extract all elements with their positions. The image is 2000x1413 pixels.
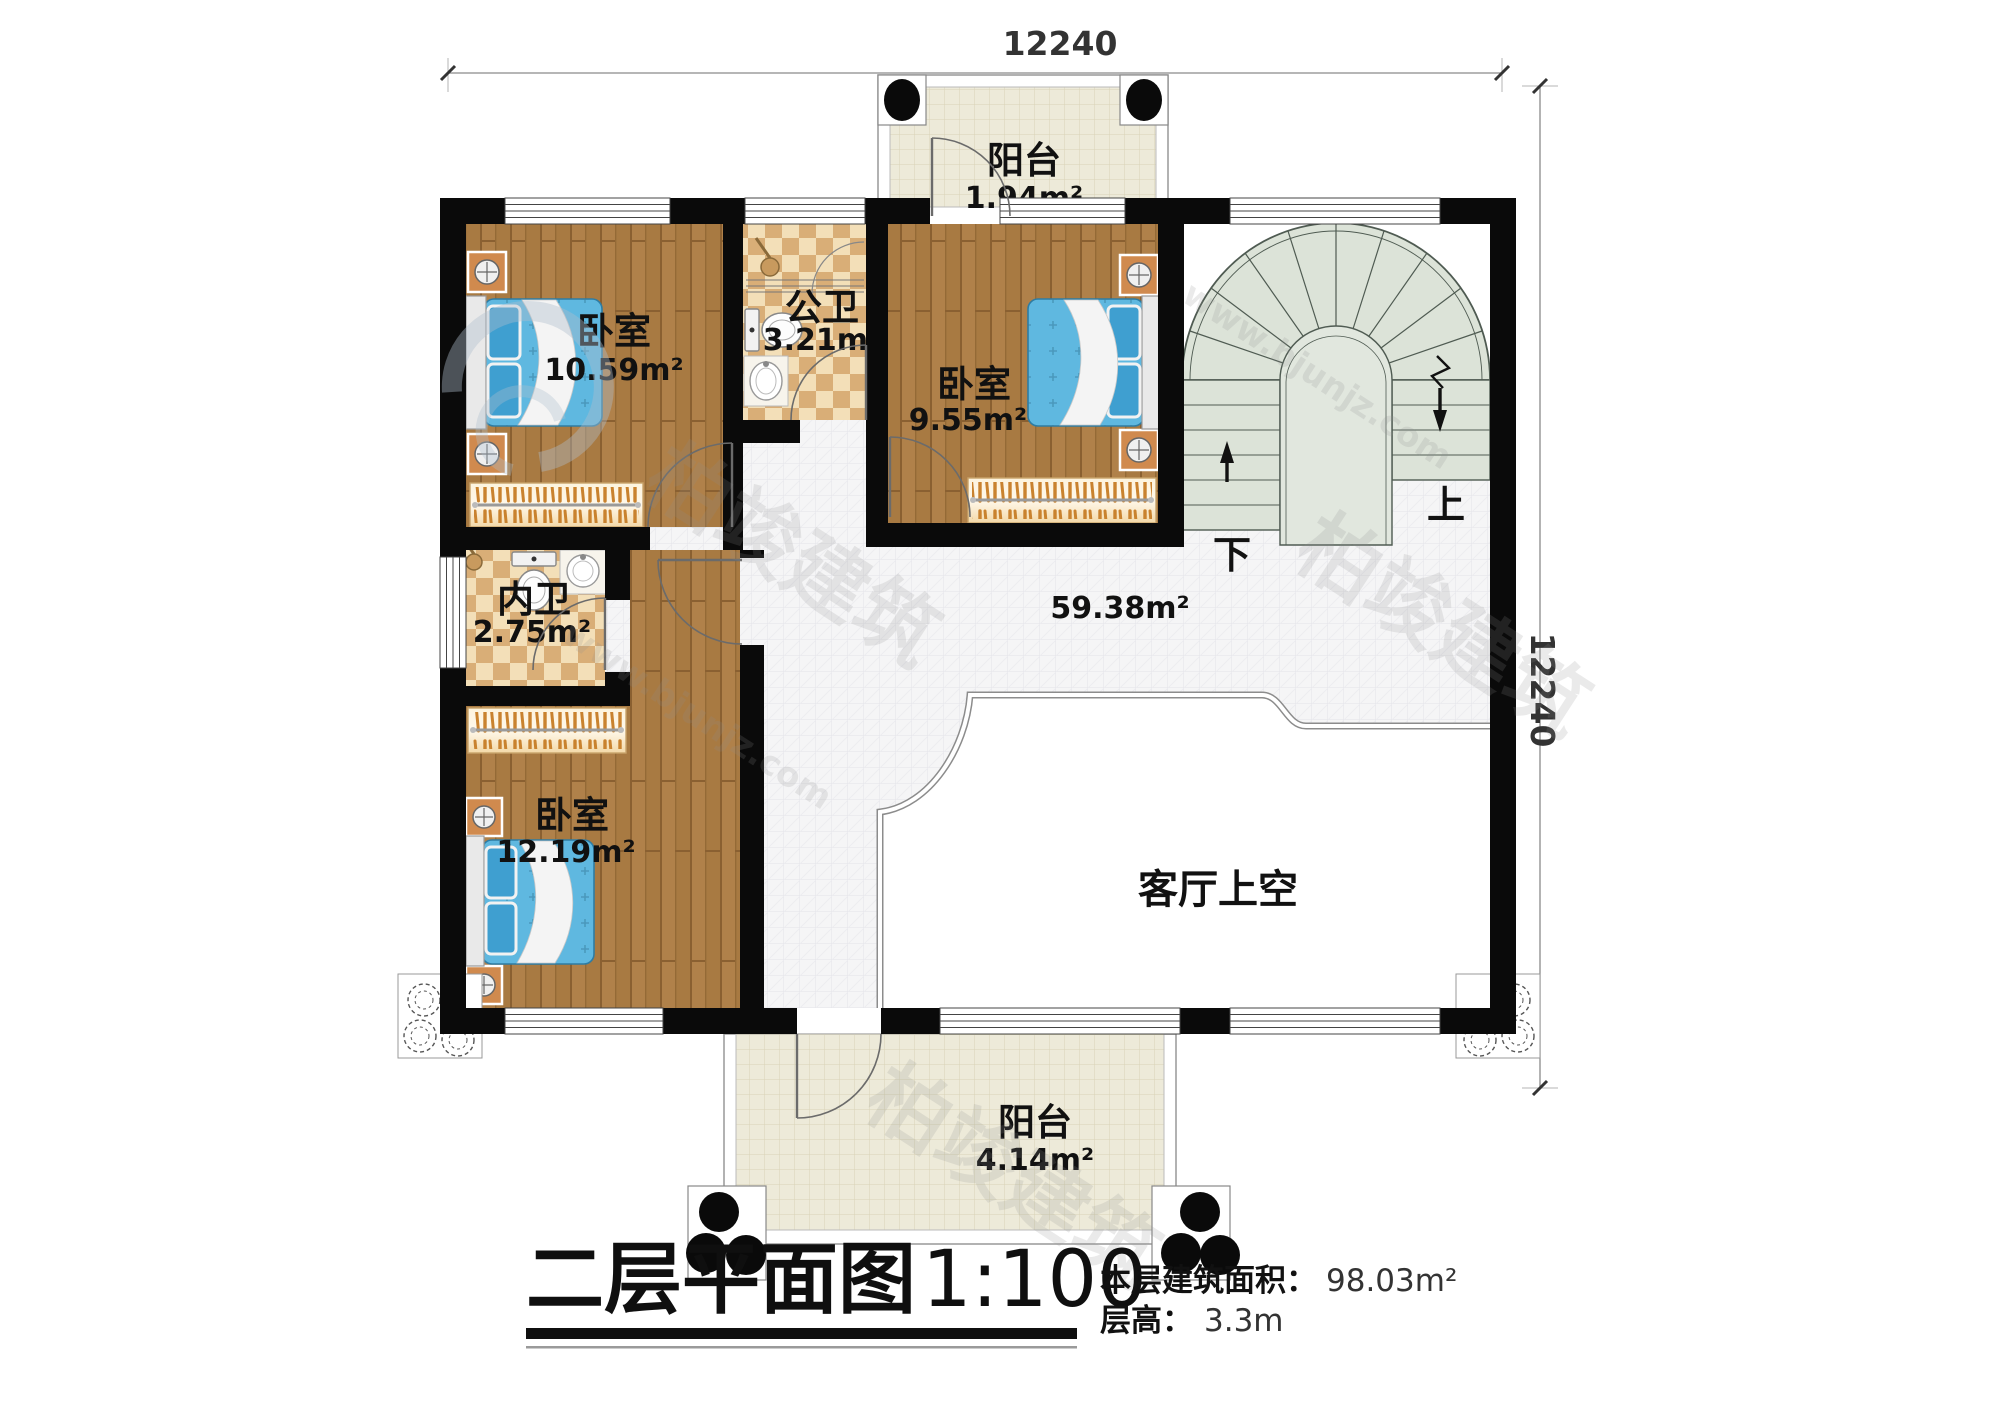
shower-head (466, 554, 482, 570)
floor-height-value: 3.3m (1204, 1303, 1284, 1339)
bedroom-n-area: 9.55m² (909, 403, 1027, 438)
plan-title: 二层平面图 (526, 1235, 916, 1325)
title-underline (526, 1328, 1077, 1339)
wardrobe-sw (468, 708, 626, 753)
bedroom-sw-area: 12.19m² (496, 835, 635, 870)
column-round (1126, 79, 1162, 121)
window (745, 198, 865, 224)
floor-plan-drawing: 12240 12240 阳台 1.94m² (0, 0, 2000, 1413)
wardrobe-n (968, 478, 1156, 523)
window (505, 1008, 663, 1034)
sink (744, 356, 788, 406)
column-round (884, 79, 920, 121)
headboard (1142, 296, 1160, 429)
window (940, 1008, 1180, 1034)
window (1230, 198, 1440, 224)
dimension-right: 12240 (1522, 79, 1562, 1095)
stair-up-label: 上 (1427, 483, 1465, 527)
bedroom-nw-area: 10.59m² (544, 353, 683, 388)
bedroom-n-label: 卧室 (937, 363, 1011, 406)
window (1230, 1008, 1440, 1034)
dim-top-value: 12240 (1003, 24, 1118, 63)
stair-down-label: 下 (1213, 533, 1251, 577)
title-block: 二层平面图 1:100 本层建筑面积： 98.03m² 层高： 3.3m (526, 1235, 1457, 1349)
floor-plan-page: 12240 12240 阳台 1.94m² (0, 0, 2000, 1413)
bedroom-sw-label: 卧室 (535, 794, 609, 837)
headboard (466, 836, 484, 966)
title-underline-thin (526, 1346, 1077, 1349)
hall-area: 59.38m² (1050, 591, 1189, 626)
floor-area-label: 本层建筑面积： (1100, 1263, 1317, 1299)
pillow (486, 903, 516, 954)
window (1000, 198, 1125, 224)
window (440, 557, 466, 668)
living-void: 客厅上空 (880, 695, 1490, 1008)
window (505, 198, 670, 224)
floor-area-value: 98.03m² (1326, 1263, 1457, 1299)
wardrobe-nw (470, 483, 643, 527)
bath-public-area: 3.21m² (763, 323, 881, 358)
floor-height-label: 层高： (1100, 1303, 1193, 1339)
balcony-top: 阳台 1.94m² (878, 75, 1168, 216)
shower-head (761, 258, 779, 276)
living-void-label: 客厅上空 (1138, 867, 1298, 913)
